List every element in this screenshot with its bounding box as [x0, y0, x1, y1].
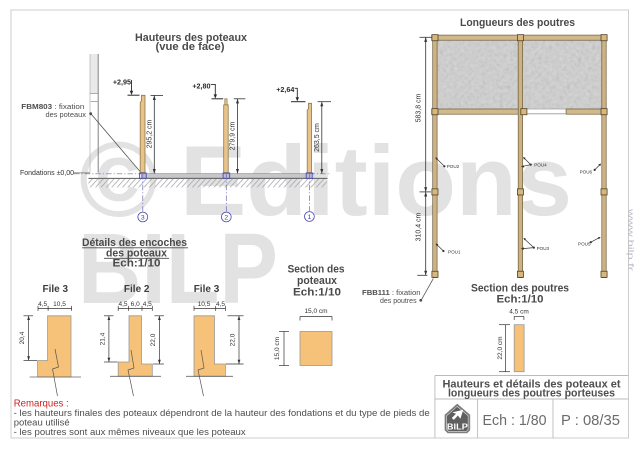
svg-text:BILP: BILP [447, 422, 469, 431]
svg-text:File 3: File 3 [43, 284, 69, 295]
svg-text:20,4: 20,4 [19, 331, 26, 344]
svg-text:279,9 cm: 279,9 cm [230, 121, 237, 150]
svg-text:des poutres: des poutres [380, 298, 417, 305]
svg-text:POU1: POU1 [448, 249, 461, 254]
svg-text:POU5: POU5 [578, 242, 591, 247]
svg-text:295,2 cm: 295,2 cm [147, 119, 154, 148]
svg-text:4,5: 4,5 [118, 301, 127, 308]
svg-text:22,0 cm: 22,0 cm [497, 336, 504, 359]
svg-text:10,5: 10,5 [53, 301, 66, 308]
svg-text:Ech:1/10: Ech:1/10 [293, 286, 341, 298]
svg-text:263,5 cm: 263,5 cm [314, 123, 321, 152]
svg-text:3: 3 [141, 215, 145, 222]
svg-text:2: 2 [224, 215, 228, 222]
svg-text:Ech:1/10: Ech:1/10 [497, 293, 544, 305]
svg-text:21,4: 21,4 [99, 332, 106, 345]
svg-text:4,5: 4,5 [38, 301, 47, 308]
svg-text:longueurs des poutres porteuse: longueurs des poutres porteuses [448, 388, 615, 400]
svg-text:15,0 cm: 15,0 cm [274, 337, 281, 360]
svg-text:10,5: 10,5 [198, 301, 211, 308]
svg-text:- les hauteurs finales des pot: - les hauteurs finales des poteaux dépen… [14, 408, 430, 419]
svg-text:poteaux: poteaux [297, 275, 338, 287]
svg-text:Longueurs des poutres: Longueurs des poutres [460, 17, 575, 29]
svg-text:POU6: POU6 [580, 170, 593, 175]
svg-text:File 3: File 3 [194, 284, 220, 295]
svg-text:POU3: POU3 [537, 246, 550, 251]
svg-text:Ech:1/10: Ech:1/10 [113, 258, 161, 270]
svg-text:(vue de face): (vue de face) [156, 41, 225, 53]
svg-text:Fondations ±0,00: Fondations ±0,00 [20, 170, 74, 177]
svg-text:+2,95: +2,95 [113, 78, 131, 87]
svg-text:+2,64: +2,64 [276, 85, 294, 94]
svg-text:22,0: 22,0 [150, 333, 157, 346]
svg-text:www.bilp.fr: www.bilp.fr [626, 207, 635, 271]
svg-text:6,0: 6,0 [131, 301, 140, 308]
svg-text:15,0 cm: 15,0 cm [304, 308, 327, 315]
svg-text:4,5: 4,5 [216, 301, 225, 308]
svg-text:File 2: File 2 [124, 284, 150, 295]
svg-text:+2,80: +2,80 [192, 81, 210, 90]
svg-text:des poteaux: des poteaux [46, 112, 87, 119]
svg-text:P : 08/35: P : 08/35 [561, 412, 620, 429]
svg-text:- les poutres sont aux mêmes n: - les poutres sont aux mêmes niveaux que… [14, 427, 246, 438]
svg-text:22,0: 22,0 [229, 333, 236, 346]
svg-text:310,4 cm: 310,4 cm [415, 212, 422, 241]
svg-text:4,5 cm: 4,5 cm [509, 308, 529, 315]
svg-text:FBM803 : fixation: FBM803 : fixation [21, 104, 84, 111]
svg-text:1: 1 [308, 214, 312, 221]
svg-text:Ech : 1/80: Ech : 1/80 [483, 412, 547, 429]
svg-text:POU4: POU4 [534, 162, 547, 167]
svg-text:4,5: 4,5 [143, 301, 152, 308]
svg-text:FBB111 : fixation: FBB111 : fixation [362, 290, 421, 297]
svg-text:POU2: POU2 [447, 164, 460, 169]
svg-text:583,8 cm: 583,8 cm [415, 93, 422, 122]
svg-text:BILP: BILP [78, 213, 278, 325]
svg-text:Section des: Section des [288, 263, 345, 275]
